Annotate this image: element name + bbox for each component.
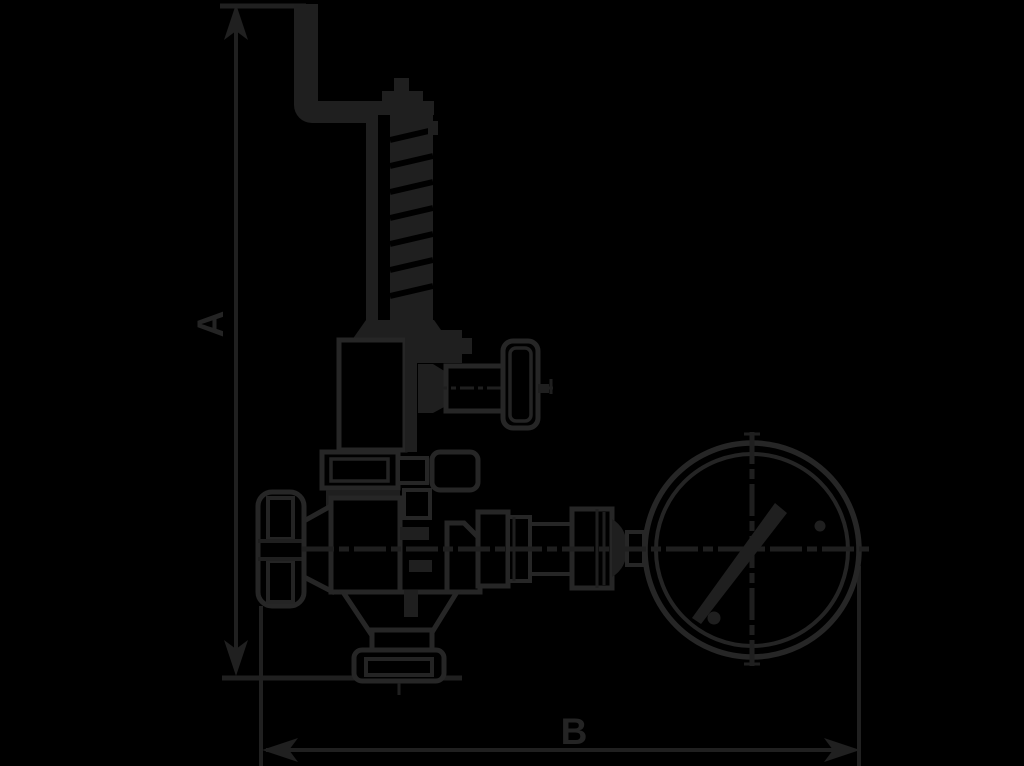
side-outlet-handwheel [414, 330, 553, 428]
bonnet-left-wall [366, 114, 378, 320]
drawing-canvas: A B [0, 0, 1024, 766]
packing-box [404, 490, 430, 518]
side-stem-tip [538, 384, 549, 393]
body-stem-upper [400, 527, 429, 540]
body-stem-lower [409, 560, 432, 572]
upper-bonnet-body [339, 340, 405, 450]
handwheel-rim [258, 492, 304, 606]
lever-arm [294, 4, 376, 123]
dimension-b-label: B [561, 711, 588, 752]
outlet-top-block [414, 330, 462, 363]
body-block [331, 498, 400, 592]
center-stem [404, 590, 418, 617]
dimension-a-label: A [190, 311, 231, 338]
lift-lever [294, 4, 376, 123]
stem-guide [398, 458, 427, 483]
valve-technical-drawing: A B [0, 0, 1024, 766]
bonnet-lug [428, 121, 438, 135]
gauge-screw-dot-right [815, 521, 826, 532]
gauge-screw-dot-left [708, 612, 721, 625]
bottom-outlet-flange [354, 650, 444, 695]
body-right-section [447, 523, 480, 592]
valve-body [331, 498, 480, 652]
passage-block [432, 452, 478, 490]
